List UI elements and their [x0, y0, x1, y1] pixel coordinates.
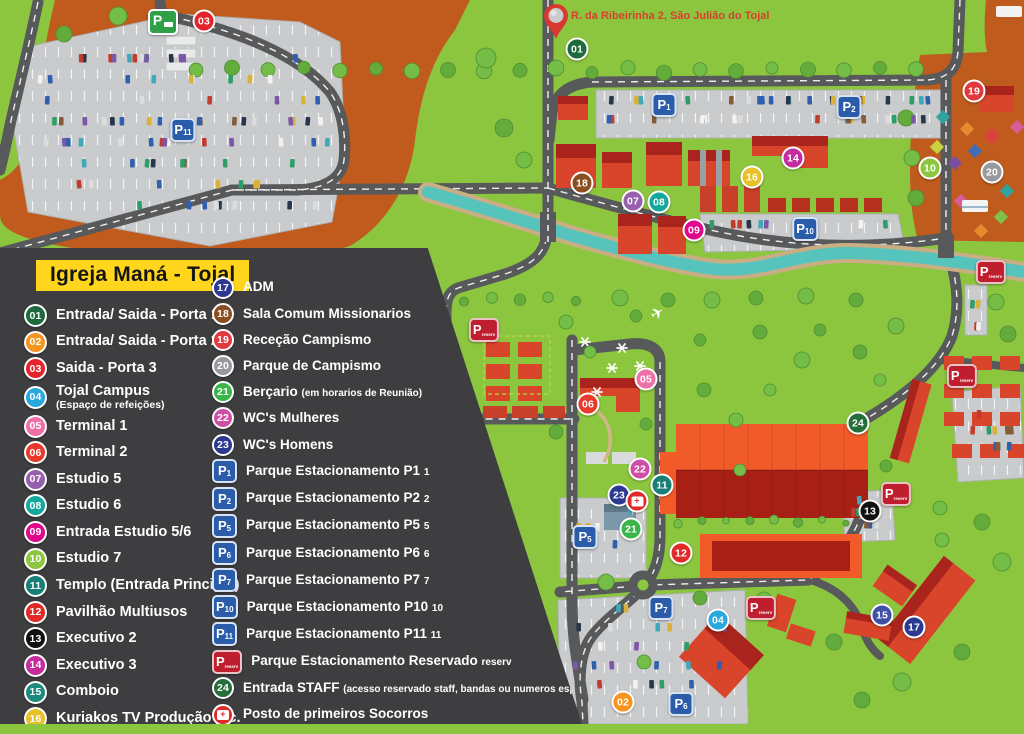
legend-item-11: 11Templo (Entrada Principal) — [24, 574, 214, 597]
legend-item-12: 12Pavilhão Multiusos — [24, 601, 214, 624]
badge-22: 22 — [212, 407, 234, 429]
badge-17: 17 — [212, 277, 234, 299]
legend-item-P7: P7Parque Estacionamento P7 7 — [212, 568, 568, 592]
legend-label-P7: Parque Estacionamento P7 7 — [246, 573, 429, 588]
legend-item-24: 24Entrada STAFF (acesso reservado staff,… — [212, 677, 568, 700]
campus-map: ✈ R. da Ribeirinha 2, São Julião do Toja… — [0, 0, 1024, 724]
legend-label-22: WC's Mulheres — [243, 411, 339, 425]
legend-label-06: Terminal 2 — [56, 445, 127, 460]
badge-04: 04 — [24, 386, 47, 409]
badge-15: 15 — [24, 681, 47, 704]
badge-24: 24 — [212, 677, 234, 699]
badge-08: 08 — [24, 494, 47, 517]
parking-sign-icon: P1 — [212, 459, 237, 483]
legend-item-P5: P5Parque Estacionamento P5 5 — [212, 514, 568, 538]
badge-03: 03 — [24, 357, 47, 380]
parking-reserved-sign-icon: Preserv — [212, 650, 242, 674]
parking-sign-icon: P10 — [212, 595, 238, 619]
badge-14: 14 — [24, 654, 47, 677]
legend-item-09: 09Entrada Estudio 5/6 — [24, 521, 214, 544]
legend-item-02: 02Entrada/ Saida - Porta 2 — [24, 331, 214, 354]
legend-label-14: Executivo 3 — [56, 658, 137, 673]
legend-label-15: Comboio — [56, 684, 119, 699]
legend-label-08: Estudio 6 — [56, 498, 121, 513]
legend-item-P11: P11Parque Estacionamento P11 11 — [212, 622, 568, 646]
legend-item-06: 06Terminal 2 — [24, 441, 214, 464]
legend-label-19: Receção Campismo — [243, 333, 371, 347]
legend-item-10: 10Estudio 7 — [24, 548, 214, 571]
badge-02: 02 — [24, 331, 47, 354]
legend-item-14: 14Executivo 3 — [24, 654, 214, 677]
legend-item-08: 08Estudio 6 — [24, 494, 214, 517]
legend-label-09: Entrada Estudio 5/6 — [56, 525, 191, 540]
badge-19: 19 — [212, 329, 234, 351]
parking-sign-icon: P5 — [212, 514, 237, 538]
legend-label-10: Estudio 7 — [56, 551, 121, 566]
badge-05: 05 — [24, 415, 47, 438]
legend-item-01: 01Entrada/ Saida - Porta 1 — [24, 304, 214, 327]
parking-sign-icon: P11 — [212, 622, 237, 646]
badge-06: 06 — [24, 441, 47, 464]
badge-21: 21 — [212, 381, 234, 403]
legend-label-02: Entrada/ Saida - Porta 2 — [56, 334, 219, 349]
legend-item-07: 07Estudio 5 — [24, 468, 214, 491]
legend-item-04: 04Tojal Campus(Espaço de refeições) — [24, 384, 214, 411]
legend-item-16: 16Kuriakos TV Produção etc. — [24, 707, 214, 730]
legend-column-left: 01Entrada/ Saida - Porta 102Entrada/ Sai… — [24, 304, 214, 734]
badge-20: 20 — [212, 355, 234, 377]
badge-13: 13 — [24, 627, 47, 650]
legend-label-05: Terminal 1 — [56, 419, 127, 434]
legend-label-03: Saida - Porta 3 — [56, 361, 157, 376]
legend-label-07: Estudio 5 — [56, 472, 121, 487]
legend-label-17: ADM — [243, 280, 274, 294]
legend-label-04: Tojal Campus(Espaço de refeições) — [56, 384, 165, 411]
legend-label-P5: Parque Estacionamento P5 5 — [246, 518, 429, 533]
parking-sign-icon: P2 — [212, 487, 237, 511]
legend-label-aid: Posto de primeiros Socorros — [243, 707, 428, 721]
legend-item-Pres: PreservParque Estacionamento Reservado r… — [212, 650, 568, 674]
badge-09: 09 — [24, 521, 47, 544]
legend-label-P11: Parque Estacionamento P11 11 — [246, 627, 441, 642]
badge-12: 12 — [24, 601, 47, 624]
first-aid-icon: + — [212, 704, 234, 726]
legend-label-23: WC's Homens — [243, 438, 333, 452]
parking-sign-icon: P7 — [212, 568, 237, 592]
badge-07: 07 — [24, 468, 47, 491]
legend-item-05: 05Terminal 1 — [24, 415, 214, 438]
legend-label-20: Parque de Campismo — [243, 359, 381, 373]
legend-item-aid: +Posto de primeiros Socorros — [212, 703, 568, 726]
legend-label-P1: Parque Estacionamento P1 1 — [246, 464, 429, 479]
legend-label-18: Sala Comum Missionarios — [243, 307, 411, 321]
location-pin-icon — [543, 4, 569, 40]
legend-item-13: 13Executivo 2 — [24, 627, 214, 650]
legend-label-24: Entrada STAFF (acesso reservado staff, b… — [243, 681, 607, 696]
legend-label-P2: Parque Estacionamento P2 2 — [246, 491, 429, 506]
legend-label-Pres: Parque Estacionamento Reservado reserv — [251, 654, 511, 669]
badge-11: 11 — [24, 574, 47, 597]
legend-label-P6: Parque Estacionamento P6 6 — [246, 546, 429, 561]
parking-sign-icon: P6 — [212, 541, 237, 565]
address-label: R. da Ribeirinha 2, São Julião do Tojal — [571, 10, 769, 22]
legend-item-P6: P6Parque Estacionamento P6 6 — [212, 541, 568, 565]
legend-label-13: Executivo 2 — [56, 631, 137, 646]
badge-18: 18 — [212, 303, 234, 325]
badge-10: 10 — [24, 548, 47, 571]
legend-label-01: Entrada/ Saida - Porta 1 — [56, 308, 219, 323]
legend-item-15: 15Comboio — [24, 681, 214, 704]
roundabout — [633, 575, 653, 595]
badge-23: 23 — [212, 434, 234, 456]
legend-item-P10: P10Parque Estacionamento P10 10 — [212, 595, 568, 619]
legend-label-12: Pavilhão Multiusos — [56, 605, 187, 620]
badge-01: 01 — [24, 304, 47, 327]
legend-label-P10: Parque Estacionamento P10 10 — [247, 600, 443, 615]
legend-item-03: 03Saida - Porta 3 — [24, 357, 214, 380]
legend-label-21: Berçario (em horarios de Reunião) — [243, 385, 422, 400]
badge-16: 16 — [24, 707, 47, 730]
